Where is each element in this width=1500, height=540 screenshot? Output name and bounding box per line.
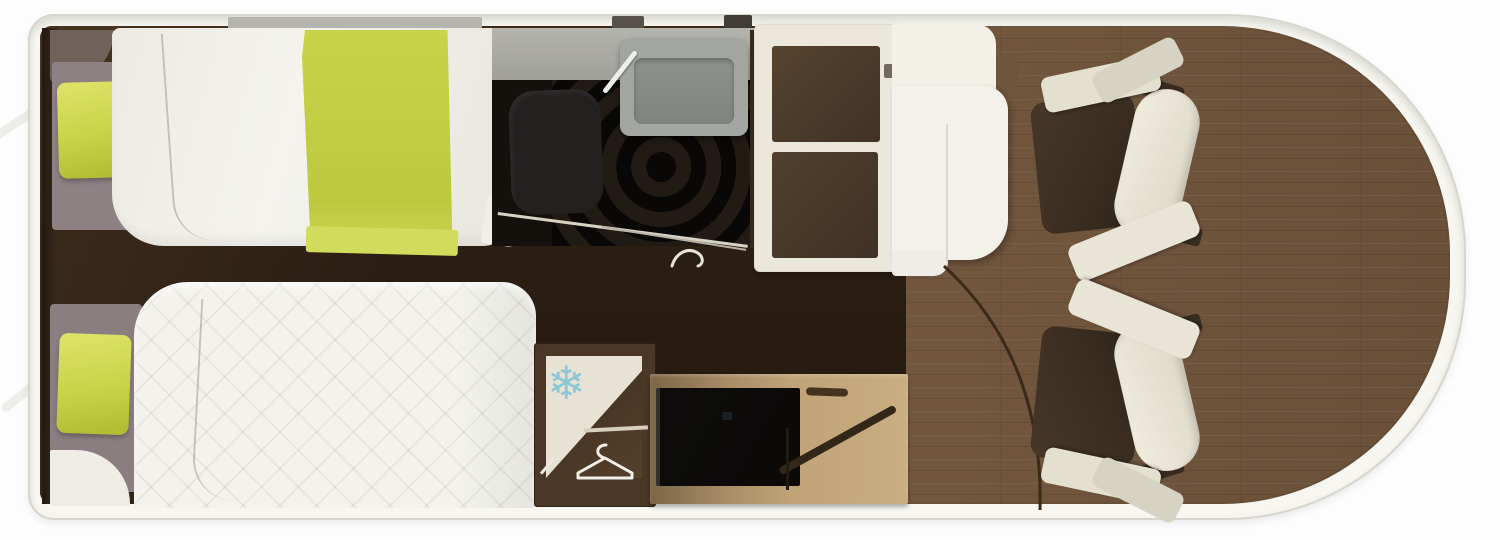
- tv-bracket-post: [786, 428, 789, 490]
- toilet: [508, 88, 604, 215]
- lime-runner-fold: [306, 226, 459, 256]
- flatscreen-tv: [656, 388, 800, 486]
- washbasin-bowl: [634, 58, 734, 124]
- unit-notch: [996, 54, 1018, 90]
- swivel-seat-lower: [1028, 294, 1198, 506]
- door-handle-hook: [666, 242, 714, 270]
- snowflake-icon: ❄: [547, 360, 586, 406]
- lime-pillow-bottom-bed: [56, 333, 131, 435]
- lime-runner: [302, 30, 452, 250]
- bench-seat-lower: [772, 152, 878, 258]
- drawer-handle: [806, 387, 848, 396]
- tv-glint: [722, 412, 732, 420]
- wall-vent: [724, 15, 752, 29]
- single-bed-bottom: [134, 282, 536, 508]
- unit-seam: [946, 124, 948, 262]
- floorplan-canvas: ❄: [0, 0, 1500, 540]
- hanger-icon: [570, 442, 640, 482]
- swivel-seat-upper: [1028, 54, 1198, 266]
- bench-seat-upper: [772, 46, 880, 142]
- kitchen-unit: [892, 86, 1008, 260]
